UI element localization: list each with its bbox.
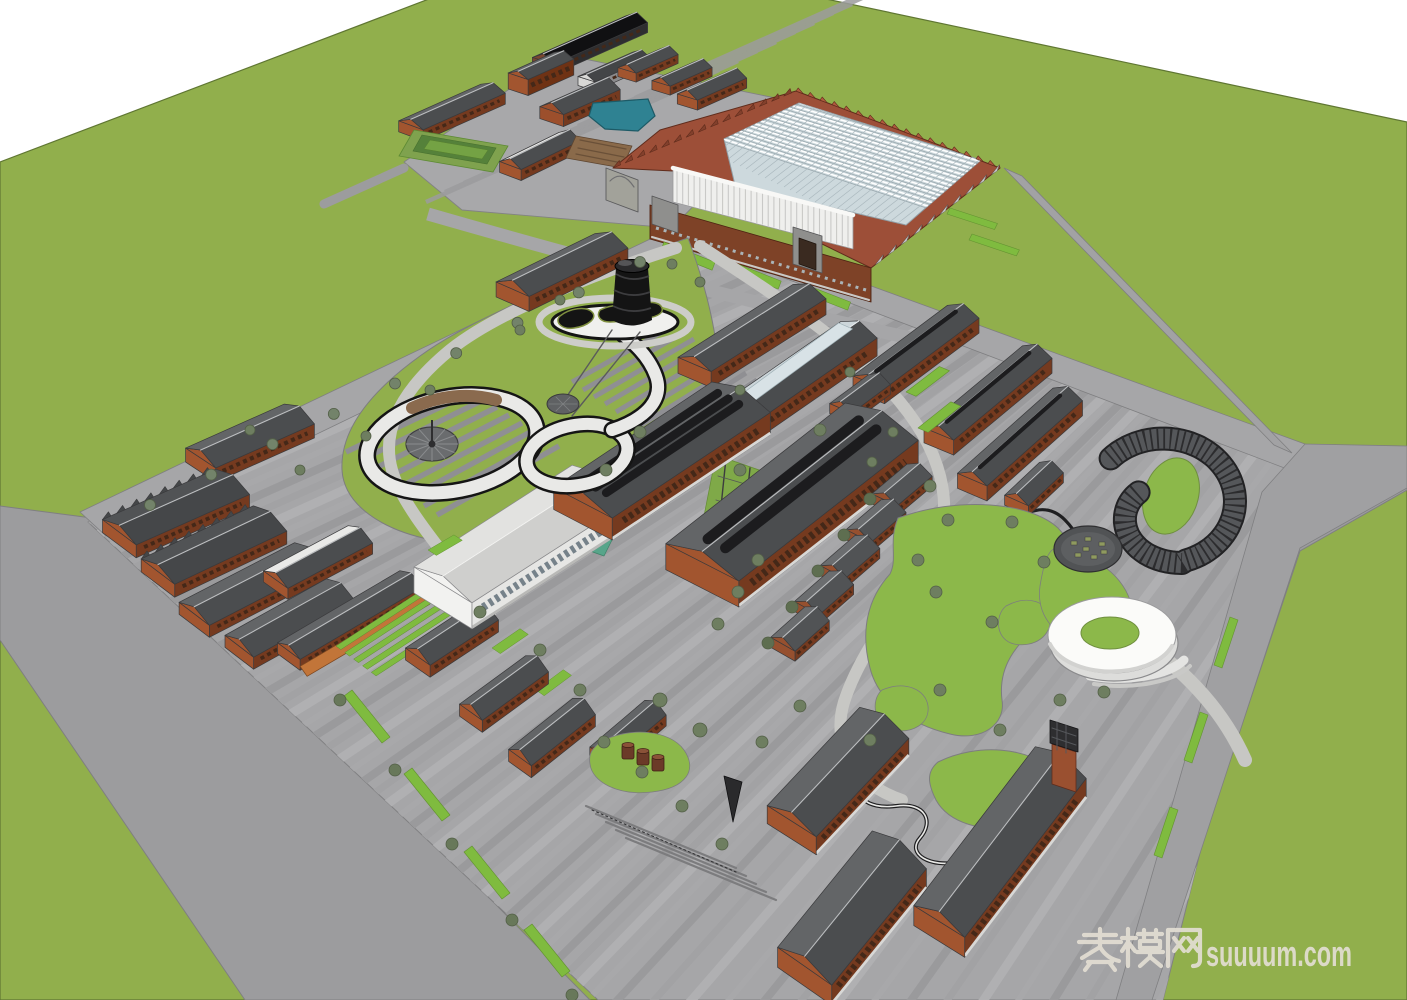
svg-text:suuuum.com: suuuum.com: [1206, 933, 1352, 974]
